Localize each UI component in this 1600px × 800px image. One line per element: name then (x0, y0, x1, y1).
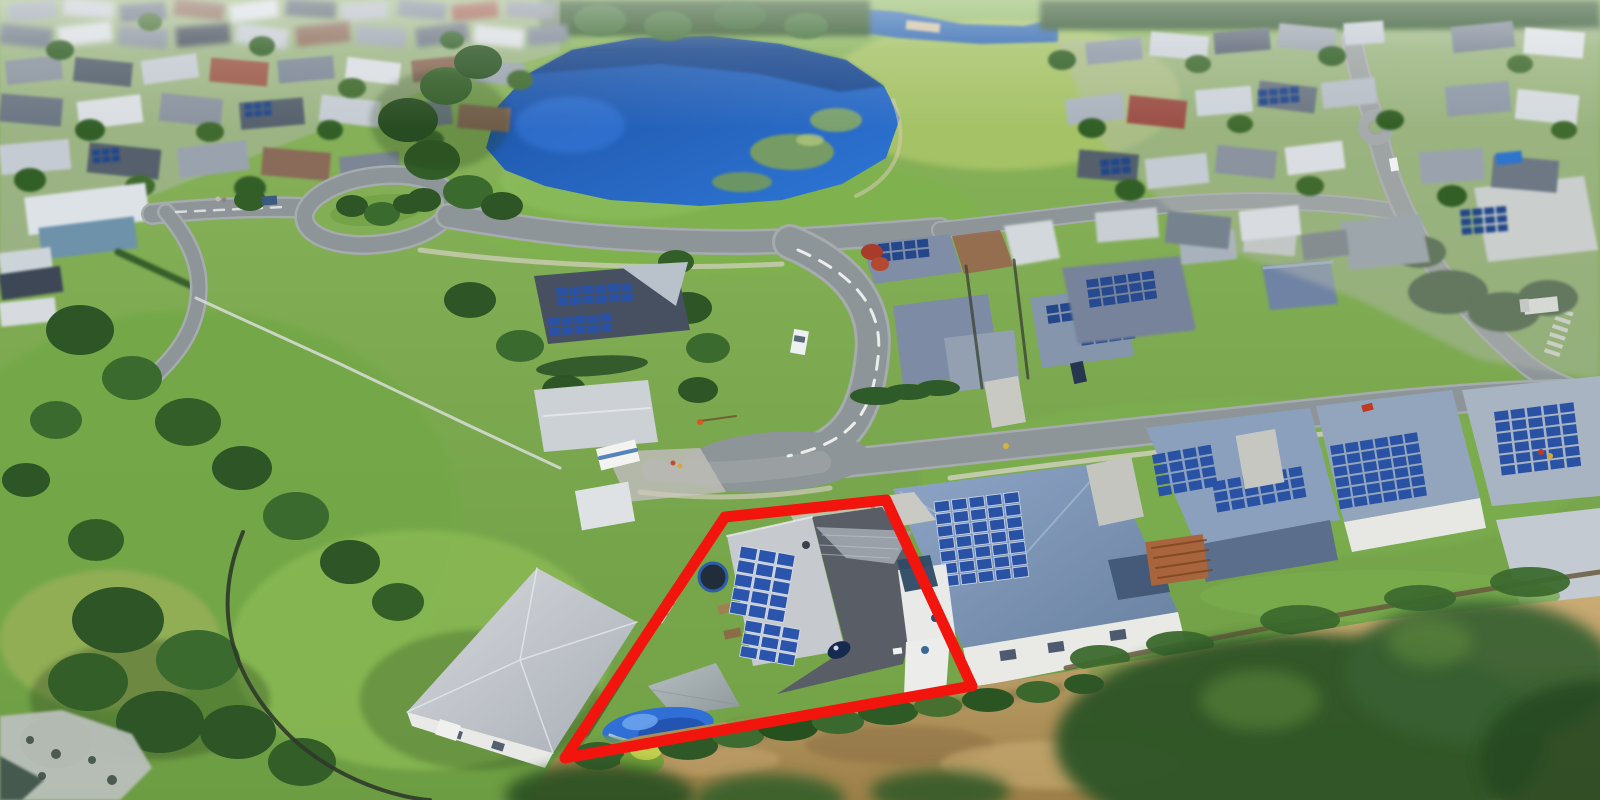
solar-panel (1561, 413, 1576, 424)
solar-panel (917, 239, 929, 248)
algae-patch (712, 172, 772, 192)
tree (48, 653, 128, 711)
solar-panel (761, 636, 780, 650)
tree (155, 398, 221, 446)
tree (68, 519, 124, 561)
solar-panel (956, 535, 972, 547)
solar-panel (1495, 421, 1510, 432)
roof (1004, 220, 1060, 266)
solar-panel (112, 155, 120, 162)
solar-panel (569, 286, 581, 295)
solar-panel (750, 591, 769, 606)
shrub (1016, 681, 1060, 703)
solar-panel (609, 294, 621, 303)
solar-panel (1531, 439, 1546, 450)
solar-panel (758, 549, 777, 564)
solar-panel (1005, 504, 1021, 516)
solar-panel (549, 327, 561, 336)
solar-panel (1533, 461, 1548, 472)
solar-panel (742, 633, 761, 647)
solar-panel (940, 550, 956, 562)
pedestrian (671, 461, 676, 466)
tree (72, 587, 164, 653)
solar-panel (570, 296, 582, 305)
solar-array (729, 546, 795, 623)
solar-panel (1473, 217, 1484, 225)
solar-panel (596, 294, 608, 303)
solar-panel (739, 546, 758, 561)
solar-panel (1460, 209, 1471, 217)
solar-panel (1497, 432, 1512, 443)
solar-panel (1007, 516, 1023, 528)
solar-panel (1543, 404, 1558, 415)
tree (30, 401, 82, 439)
solar-panel (1114, 274, 1127, 284)
solar-panel (1110, 158, 1120, 166)
solar-panel (1513, 430, 1528, 441)
algae-patch (796, 134, 824, 146)
tree (407, 188, 441, 212)
solar-panel (774, 566, 793, 581)
worker (697, 419, 703, 425)
solar-panel (1546, 426, 1561, 437)
solar-panel (1496, 206, 1507, 214)
solar-panel (587, 315, 599, 324)
solar-panel (1100, 276, 1113, 286)
solar-panel (1497, 224, 1508, 232)
tree (14, 168, 46, 192)
solar-panel (744, 620, 763, 634)
solar-panel (1529, 428, 1544, 439)
solar-panel (1008, 529, 1024, 541)
tree (234, 189, 266, 211)
solar-panel (1510, 408, 1525, 419)
solar-panel (583, 295, 595, 304)
solar-panel (93, 157, 101, 164)
solar-panel (1047, 314, 1060, 324)
tree (372, 583, 424, 621)
mailbox (1003, 443, 1009, 449)
tree (481, 192, 523, 220)
hedge (916, 380, 960, 396)
solar-panel (755, 563, 774, 578)
solar-panel (767, 608, 786, 623)
solar-panel (101, 148, 109, 155)
solar-panel (1117, 294, 1130, 304)
tree (1115, 179, 1145, 201)
solar-panel (1129, 282, 1142, 292)
solar-panel (1087, 288, 1100, 298)
solar-panel (608, 284, 620, 293)
solar-panel (1527, 406, 1542, 417)
solar-panel (934, 500, 950, 512)
ac-unit (893, 647, 903, 654)
roof-vent (802, 541, 810, 549)
tree (678, 377, 718, 403)
pedestrian (222, 198, 227, 203)
solar-panel (556, 287, 568, 296)
solar-panel (1514, 441, 1529, 452)
solar-panel (957, 548, 973, 560)
tree (46, 305, 114, 355)
solar-panel (1485, 216, 1496, 224)
solar-panel (574, 315, 586, 324)
foreground-bush-light (1388, 617, 1472, 667)
solar-panel (622, 293, 634, 302)
solar-panel (779, 639, 798, 653)
solar-panel (600, 314, 612, 323)
solar-panel (557, 297, 569, 306)
solar-panel (111, 148, 119, 155)
tree (336, 195, 368, 217)
tree (263, 492, 329, 540)
hedge (1490, 567, 1570, 597)
tree (200, 705, 276, 759)
solar-panel (992, 543, 1008, 555)
solar-panel (771, 580, 790, 595)
solar-panel (776, 553, 795, 568)
solar-panel (740, 646, 759, 660)
solar-panel (1003, 492, 1019, 504)
solar-panel (953, 510, 969, 522)
tree (686, 333, 730, 363)
tree (2, 463, 50, 497)
water-tank (921, 646, 929, 654)
rock (107, 775, 117, 785)
solar-panel (1472, 208, 1483, 216)
solar-panel (1497, 215, 1508, 223)
flower-bush (871, 257, 889, 271)
satellite-dish-arm (834, 646, 839, 651)
rock (26, 736, 34, 744)
solar-panel (1128, 272, 1141, 282)
solar-panel (904, 240, 916, 249)
solar-panel (621, 283, 633, 292)
roof (1239, 205, 1302, 241)
pedestrian (216, 197, 221, 202)
solar-panel (1101, 168, 1111, 176)
solar-panel (769, 594, 788, 609)
solar-panel (978, 570, 994, 582)
solar-panel (936, 513, 952, 525)
solar-panel (575, 325, 587, 334)
haze (0, 0, 1600, 50)
roof (1095, 207, 1159, 242)
solar-panel (1462, 227, 1473, 235)
solar-panel (1560, 402, 1575, 413)
solar-panel (918, 249, 930, 258)
solar-panel (995, 568, 1011, 580)
solar-panel (595, 285, 607, 294)
solar-panel (969, 496, 985, 508)
solar-panel (1494, 410, 1509, 421)
solar-panel (891, 241, 903, 250)
tree (1296, 176, 1324, 196)
solar-panel (758, 649, 777, 663)
solar-panel (1046, 304, 1059, 314)
rock (88, 756, 96, 764)
solar-panel (959, 560, 975, 572)
rock (51, 749, 61, 759)
solar-panel (1103, 296, 1116, 306)
aerial-photo-stage (0, 0, 1600, 800)
tree (320, 540, 380, 584)
solar-panel (1010, 541, 1026, 553)
tree (444, 282, 496, 318)
solar-panel (1562, 424, 1577, 435)
solar-panel (937, 525, 953, 537)
solar-panel (1528, 417, 1543, 428)
solar-panel (1566, 457, 1581, 468)
solar-panel (1122, 166, 1132, 174)
solar-panel (988, 506, 1004, 518)
solar-panel (951, 498, 967, 510)
solar-panel (994, 556, 1010, 568)
solar-panel (1141, 271, 1154, 281)
solar-panel (905, 250, 917, 259)
solar-panel (972, 521, 988, 533)
solar-panel (1501, 465, 1516, 476)
solar-panel (1100, 159, 1110, 167)
solar-panel (1089, 298, 1102, 308)
tree (1437, 185, 1467, 207)
solar-panel (1512, 419, 1527, 430)
solar-panel (1544, 415, 1559, 426)
tree (156, 630, 240, 690)
aerial-photo (0, 0, 1600, 800)
solar-panel (1101, 286, 1114, 296)
solar-panel (777, 652, 796, 666)
solar-panel (970, 508, 986, 520)
roof (1165, 211, 1232, 250)
solar-panel (1011, 554, 1027, 566)
solar-panel (1130, 292, 1143, 302)
solar-panel (92, 149, 100, 156)
solar-panel (729, 601, 748, 616)
solar-panel (763, 623, 782, 637)
solar-panel (976, 558, 992, 570)
solar-panel (986, 494, 1002, 506)
solar-panel (561, 316, 573, 325)
solar-panel (991, 531, 1007, 543)
solar-panel (782, 627, 801, 641)
solar-panel (973, 533, 989, 545)
solar-panel (1565, 446, 1580, 457)
car (262, 195, 278, 205)
solar-panel (732, 587, 751, 602)
solar-panel (1013, 566, 1029, 578)
foreground-bush-light (1200, 670, 1320, 730)
pedestrian (1538, 449, 1544, 455)
solar-panel (102, 156, 110, 163)
solar-array (934, 492, 1029, 587)
solar-panel (1086, 278, 1099, 288)
solar-panel (975, 546, 991, 558)
tree (496, 330, 544, 362)
solar-panel (748, 604, 767, 619)
solar-panel (939, 537, 955, 549)
solar-panel (1484, 207, 1495, 215)
solar-panel (1516, 452, 1531, 463)
solar-panel (562, 326, 574, 335)
solar-panel (1143, 280, 1156, 290)
roof (261, 147, 331, 181)
solar-panel (1499, 454, 1514, 465)
solar-panel (961, 572, 977, 584)
solar-panel (1550, 459, 1565, 470)
pedestrian (1547, 453, 1553, 459)
solar-panel (1115, 284, 1128, 294)
solar-panel (734, 574, 753, 589)
solar-panel (1111, 167, 1121, 175)
solar-panel (1517, 463, 1532, 474)
tree (102, 356, 162, 400)
solar-panel (1144, 290, 1157, 300)
solar-panel (892, 251, 904, 260)
solar-panel (736, 560, 755, 575)
roof (1419, 148, 1485, 184)
solar-panel (601, 324, 613, 333)
solar-panel (753, 577, 772, 592)
solar-panel (548, 317, 560, 326)
solar-panel (1498, 443, 1513, 454)
solar-panel (1121, 157, 1131, 165)
solar-panel (582, 285, 594, 294)
solar-panel (989, 519, 1005, 531)
solar-panel (1474, 226, 1485, 234)
solar-panel (1461, 218, 1472, 226)
solar-panel (1564, 435, 1579, 446)
tree (212, 446, 272, 490)
pedestrian (678, 464, 683, 469)
solar-panel (1485, 225, 1496, 233)
solar-panel (1547, 437, 1562, 448)
solar-panel (588, 324, 600, 333)
solar-panel (954, 523, 970, 535)
